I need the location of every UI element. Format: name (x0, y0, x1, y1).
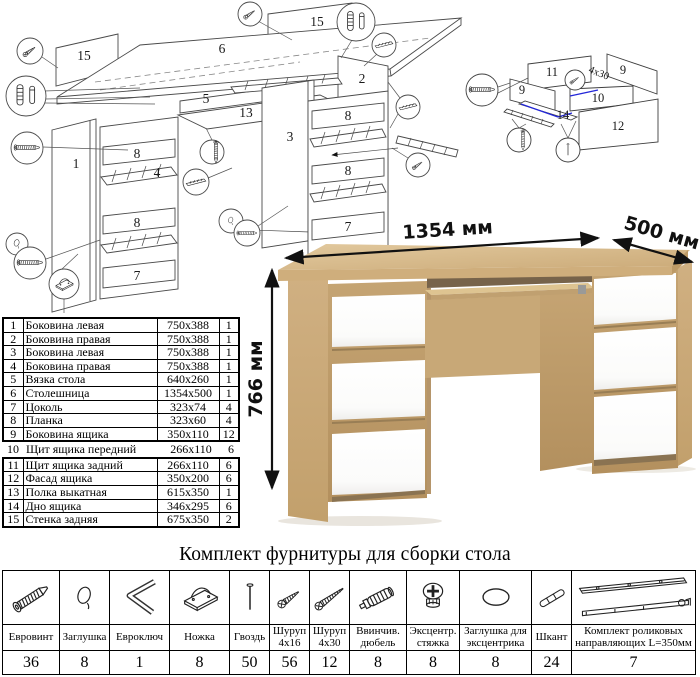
part-name: Столешница (23, 386, 157, 400)
hardware-kit-title: Комплект фурнитуры для сборки стола (0, 544, 690, 566)
hw-col-zaglushka: Заглушка 8 (60, 571, 110, 674)
hw-col-evroklyuch: Евроключ 1 (110, 571, 170, 674)
part-label: 10 (592, 91, 605, 105)
part-qty: 6 (219, 472, 239, 486)
parts-table-row: 1 Боковина левая 750x388 1 (3, 318, 239, 332)
part-qty: 1 (219, 373, 239, 387)
dimension-width-label: 1354 мм (402, 216, 494, 244)
desktop (278, 244, 690, 270)
part-size: 350x110 (157, 427, 219, 441)
part-name: Щит ящика задний (23, 458, 157, 472)
parts-table-row: 10 Щит ящика передний 266x110 6 (2, 442, 240, 457)
hw-item-qty: 7 (572, 651, 695, 674)
right-side-panel (678, 260, 692, 466)
part-name: Цоколь (23, 400, 157, 414)
drawer-front (332, 429, 425, 495)
part-size: 750x388 (157, 332, 219, 346)
part-label: 13 (239, 105, 253, 120)
part-name: Вязка стола (23, 373, 157, 387)
parts-table-row: 7 Цоколь 323x74 4 (3, 400, 239, 414)
part-size: 750x388 (157, 359, 219, 373)
part-number: 11 (3, 458, 23, 472)
part-size: 1354x500 (157, 386, 219, 400)
hw-col-gvozd: Гвоздь 50 (230, 571, 270, 674)
hw-item-qty: 8 (460, 651, 531, 674)
part-label: 15 (310, 14, 324, 29)
part-size: 640x260 (157, 373, 219, 387)
part-number: 8 (3, 414, 23, 428)
part-number: 9 (3, 427, 23, 441)
drawer-front (332, 360, 425, 420)
part-number: 10 (2, 442, 24, 457)
part-size: 323x60 (157, 414, 219, 428)
hw-col-zaglushka-ekscentrika: Заглушка для эксцентрика 8 (460, 571, 532, 674)
parts-table-row: 12 Фасад ящика 350x200 6 (3, 472, 239, 486)
drawer-front (594, 327, 676, 390)
part-label: 8 (345, 163, 352, 178)
hw-col-shurup-4x16: Шуруп 4x16 56 (270, 571, 310, 674)
part-label: 9 (519, 83, 525, 97)
part-label: 7 (345, 219, 352, 234)
part-size: 350x200 (157, 472, 219, 486)
hw-item-qty: 50 (230, 651, 269, 674)
hw-item-qty: 56 (270, 651, 309, 674)
hw-item-name: Ввинчив. дюбель (350, 625, 406, 651)
part-name: Щит ящика передний (24, 442, 160, 457)
part-number: 14 (3, 499, 23, 513)
inner-side-panel (540, 288, 592, 471)
hw-item-name: Ножка (170, 625, 229, 651)
part-qty: 1 (219, 486, 239, 500)
part-label: 1 (73, 156, 80, 171)
part-qty: 4 (219, 414, 239, 428)
hw-col-styazhka: Эксцентр. стяжка 8 (407, 571, 460, 674)
hw-col-shkant: Шкант 24 (532, 571, 572, 674)
hw-item-qty: 8 (407, 651, 459, 674)
parts-table-row: 13 Полка выкатная 615x350 1 (3, 486, 239, 500)
part-name: Полка выкатная (23, 486, 157, 500)
part-number: 4 (3, 359, 23, 373)
part-size: 675x350 (157, 513, 219, 527)
part-number: 7 (3, 400, 23, 414)
dimension-depth-label: 500 мм (621, 212, 700, 254)
part-name: Боковина правая (23, 359, 157, 373)
hw-item-name: Евровинт (3, 625, 59, 651)
part-qty: 4 (219, 400, 239, 414)
drawer-front (594, 391, 676, 464)
part-label: 8 (134, 146, 141, 161)
exploded-diagram-drawer: 4x30 11 9 9 10 14 12 (466, 54, 658, 162)
part-label: 12 (612, 119, 625, 133)
hw-col-nozhka: Ножка 8 (170, 571, 230, 674)
part-number: 12 (3, 472, 23, 486)
hw-item-qty: 36 (3, 651, 59, 674)
part-qty: 1 (219, 318, 239, 332)
screw-in-dowel-icon (355, 575, 401, 621)
foot-icon (177, 575, 223, 621)
part-number: 5 (3, 373, 23, 387)
hw-item-name: Комплект роликовых направляющих L=350мм (572, 625, 695, 651)
hw-item-name: Гвоздь (230, 625, 269, 651)
part-size: 346x295 (157, 499, 219, 513)
part-label: 6 (219, 41, 226, 56)
part-qty: 2 (219, 513, 239, 527)
part-qty: 1 (219, 332, 239, 346)
screw-4x16-icon (271, 577, 309, 619)
part-name: Фасад ящика (23, 472, 157, 486)
part-label: 7 (134, 268, 141, 283)
hw-item-name: Заглушка (60, 625, 109, 651)
part-label: 3 (287, 129, 294, 144)
hw-item-qty: 8 (60, 651, 109, 674)
left-side-panel (288, 274, 328, 522)
part-label: 8 (345, 108, 352, 123)
cam-lock-icon (411, 576, 455, 620)
part-qty: 6 (219, 458, 239, 472)
part-size: 266x110 (160, 442, 222, 457)
parts-table-row: 6 Столешница 1354x500 1 (3, 386, 239, 400)
hw-item-name: Шуруп 4x16 (270, 625, 309, 651)
hw-col-dyubel: Ввинчив. дюбель 8 (350, 571, 407, 674)
part-number: 15 (3, 513, 23, 527)
part-label: 8 (134, 215, 141, 230)
part-label: 9 (620, 63, 626, 77)
part-size: 266x110 (157, 458, 219, 472)
drawer-slide-icon (575, 577, 693, 619)
desk-render: 1354 мм 500 мм 766 мм (245, 212, 700, 526)
parts-table-top: 1 Боковина левая 750x388 1 2 Боковина пр… (2, 317, 240, 442)
parts-table-row: 11 Щит ящика задний 266x110 6 (3, 458, 239, 472)
hw-item-qty: 12 (310, 651, 349, 674)
part-name: Боковина правая (23, 332, 157, 346)
parts-table-row: 5 Вязка стола 640x260 1 (3, 373, 239, 387)
hardware-kit-table: Евровинт 36 Заглушка 8 Евроключ 1 Ножка … (2, 570, 696, 675)
back-rail-panel (425, 295, 540, 378)
parts-table-row: 4 Боковина правая 750x388 1 (3, 359, 239, 373)
parts-table-row: 15 Стенка задняя 675x350 2 (3, 513, 239, 527)
part-label: 2 (359, 71, 366, 86)
part-number: 1 (3, 318, 23, 332)
part-label: 4 (154, 165, 161, 180)
cap-icon (63, 576, 107, 620)
hw-item-qty: 8 (170, 651, 229, 674)
part-number: 6 (3, 386, 23, 400)
hw-item-qty: 8 (350, 651, 406, 674)
wood-dowel-icon (533, 577, 571, 619)
part-name: Боковина ящика (23, 427, 157, 441)
part-qty: 12 (219, 427, 239, 441)
screw-4x30-icon (310, 576, 349, 620)
parts-table-row: 3 Боковина левая 750x388 1 (3, 346, 239, 360)
part-size: 615x350 (157, 486, 219, 500)
drawer-front (332, 294, 425, 347)
part-name: Планка (23, 414, 157, 428)
part-size: 323x74 (157, 400, 219, 414)
part-label: 5 (203, 91, 210, 106)
part-number: 3 (3, 346, 23, 360)
part-qty: 6 (222, 442, 240, 457)
parts-table-row: 8 Планка 323x60 4 (3, 414, 239, 428)
hw-item-name: Шуруп 4x30 (310, 625, 349, 651)
part-number: 2 (3, 332, 23, 346)
part-name: Боковина левая (23, 318, 157, 332)
hw-item-qty: 1 (110, 651, 169, 674)
hw-item-name: Эксцентр. стяжка (407, 625, 459, 651)
parts-table-bottom: 11 Щит ящика задний 266x110 6 12 Фасад я… (2, 457, 240, 528)
part-qty: 6 (219, 499, 239, 513)
part-name: Стенка задняя (23, 513, 157, 527)
hw-item-name: Евроключ (110, 625, 169, 651)
hw-item-name: Шкант (532, 625, 571, 651)
hex-key-icon (117, 575, 163, 621)
dimension-height-label: 766 мм (245, 340, 267, 417)
part-qty: 1 (219, 359, 239, 373)
part-qty: 1 (219, 346, 239, 360)
hw-col-shurup-4x30: Шуруп 4x30 12 (310, 571, 350, 674)
assembly-instruction-sheet: { "render": { "dim_width": "1354 мм", "d… (0, 0, 700, 677)
part-name: Дно ящика (23, 499, 157, 513)
part-name: Боковина левая (23, 346, 157, 360)
hw-item-name: Заглушка для эксцентрика (460, 625, 531, 651)
part-size: 750x388 (157, 318, 219, 332)
drawer-front (594, 273, 676, 325)
part-label: 14 (557, 108, 570, 122)
hw-col-eurovint: Евровинт 36 (3, 571, 60, 674)
nail-icon (230, 576, 269, 620)
hw-col-napravlyayushchie: Комплект роликовых направляющих L=350мм … (572, 571, 695, 674)
hw-item-qty: 24 (532, 651, 571, 674)
part-qty: 1 (219, 386, 239, 400)
parts-table-row: 14 Дно ящика 346x295 6 (3, 499, 239, 513)
cam-cap-icon (473, 575, 519, 621)
parts-table-row: 9 Боковина ящика 350x110 12 (3, 427, 239, 441)
parts-table-row: 2 Боковина правая 750x388 1 (3, 332, 239, 346)
part-number: 13 (3, 486, 23, 500)
euro-screw-icon (8, 575, 54, 621)
part-label: 15 (77, 48, 91, 63)
part-label: 11 (546, 65, 558, 79)
part-size: 750x388 (157, 346, 219, 360)
parts-list: 1 Боковина левая 750x388 1 2 Боковина пр… (2, 317, 240, 528)
